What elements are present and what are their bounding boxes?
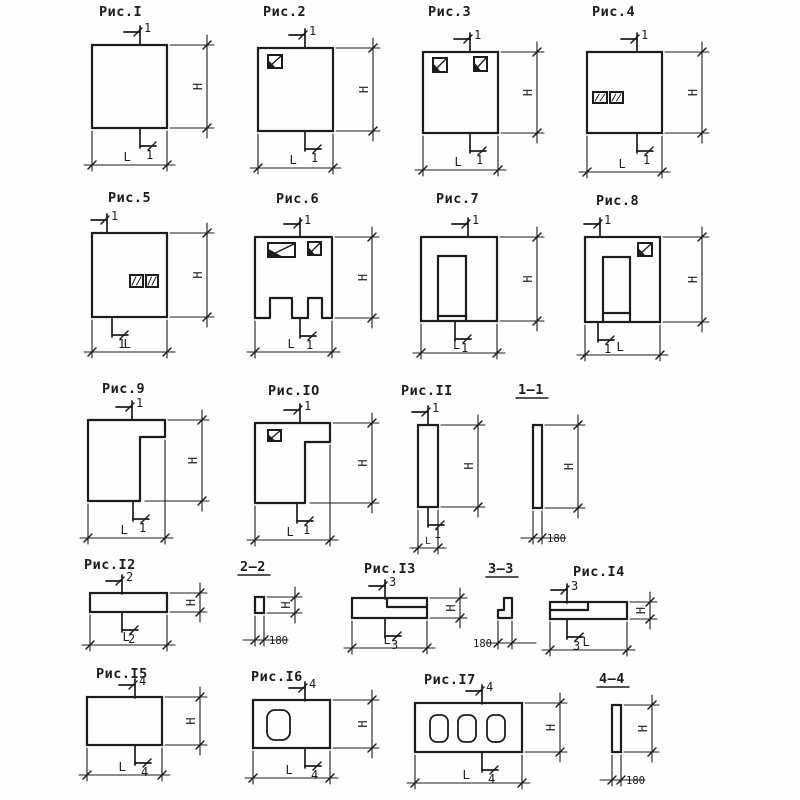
height-dim-label: H — [562, 463, 576, 470]
figure-fig7: Рис.711HL — [413, 191, 544, 359]
cut-number: 3 — [571, 579, 578, 593]
panel-outline — [258, 48, 333, 131]
height-dim-label: H — [521, 89, 535, 96]
length-dim-label: L — [119, 760, 126, 774]
length-dim-label: L — [463, 768, 470, 782]
height-dim-label: H — [521, 275, 535, 282]
thickness-dim-label: 180 — [547, 533, 566, 545]
figure-fig8: Рис.811HL — [577, 193, 709, 361]
length-dim-label: L — [121, 523, 128, 537]
hatch-line — [137, 277, 142, 285]
figure-title: Рис.9 — [102, 381, 145, 397]
height-dim-label: H — [191, 271, 205, 278]
section-sec4: 4—4H180 — [597, 671, 659, 787]
cut-number: 1 — [641, 28, 648, 42]
thickness-dim-label: 180 — [473, 638, 492, 650]
length-dim-label: L — [290, 153, 297, 167]
figure-fig1: Рис.I11HL — [84, 4, 214, 171]
cut-number: 3 — [573, 639, 580, 653]
hatch-line — [148, 277, 151, 285]
panel-outline — [88, 420, 165, 501]
figure-title: Рис.II — [401, 383, 453, 399]
length-dim-label: L — [453, 338, 460, 352]
panel-outline — [498, 598, 512, 618]
hatch-line — [595, 94, 599, 101]
length-dim-label: L — [124, 150, 131, 164]
section-profile — [255, 597, 264, 613]
figure-fig11: Рис.II11HL — [401, 383, 485, 554]
figure-title: Рис.I6 — [251, 669, 303, 685]
hatch-line — [612, 94, 616, 101]
section-title: 3—3 — [488, 561, 514, 577]
panel-outline — [418, 425, 438, 507]
cut-number: 1 — [432, 401, 439, 415]
cut-number: 1 — [111, 209, 118, 223]
panel-outline — [92, 45, 167, 128]
figure-fig12: Рис.I222HL — [82, 557, 207, 651]
height-dim-label: H — [356, 274, 370, 281]
figure-title: Рис.4 — [592, 4, 635, 20]
void-hole — [267, 710, 290, 740]
length-dim-label: L — [123, 630, 130, 644]
section-sec1: 1—1H180 — [516, 382, 585, 545]
cut-number: 1 — [474, 28, 481, 42]
height-dim-label: H — [191, 83, 205, 90]
hatch-line — [152, 277, 156, 285]
figure-fig17: Рис.I744HL — [407, 672, 567, 789]
cut-number: 4 — [139, 674, 146, 688]
panel-outline — [421, 237, 497, 321]
height-dim-label: H — [356, 720, 370, 727]
height-dim-label: H — [357, 86, 371, 93]
length-dim-label: L — [384, 633, 391, 647]
door-opening — [438, 256, 466, 316]
hatch-line — [132, 277, 136, 285]
cut-number: 1 — [304, 399, 311, 413]
figure-title: Рис.3 — [428, 4, 471, 20]
figure-fig2: Рис.211HL — [250, 4, 380, 174]
cut-number: 1 — [306, 338, 313, 352]
cut-number: 1 — [309, 24, 316, 38]
figure-fig10: Рис.IO11HL — [247, 383, 379, 546]
figure-title: Рис.7 — [436, 191, 479, 207]
cut-number: 1 — [311, 151, 318, 165]
height-dim-label: H — [634, 607, 648, 614]
cut-number: 1 — [139, 521, 146, 535]
height-dim-label: H — [686, 89, 700, 96]
hatch-line — [617, 94, 622, 101]
panel-outline — [415, 703, 522, 752]
length-dim-label: L — [425, 536, 431, 547]
thickness-dim-label: 180 — [626, 775, 645, 787]
figure-fig13: Рис.I333HL — [344, 561, 467, 654]
void-hole — [430, 715, 448, 742]
height-dim-label: H — [279, 601, 293, 608]
cut-number: 4 — [488, 772, 495, 786]
figure-title: Рис.I4 — [573, 564, 625, 580]
cut-number: 1 — [146, 148, 153, 162]
figure-title: Рис.I — [99, 4, 142, 20]
cut-number: 4 — [141, 765, 148, 779]
section-title: 2—2 — [240, 559, 266, 575]
cut-number: 1 — [144, 21, 151, 35]
void-hole — [487, 715, 505, 742]
figure-fig5: Рис.511HL — [84, 190, 214, 358]
length-dim-label: L — [455, 155, 462, 169]
length-dim-label: L — [124, 337, 131, 351]
cut-number: 1 — [136, 396, 143, 410]
panel-outline — [87, 697, 162, 745]
length-dim-label: L — [617, 340, 624, 354]
cut-number: 1 — [303, 523, 310, 537]
cut-number: 1 — [604, 213, 611, 227]
figure-fig14: Рис.I433HL — [542, 564, 657, 656]
panel-outline — [253, 700, 330, 748]
length-dim-label: L — [583, 635, 590, 649]
figure-fig15: Рис.I544HL — [79, 666, 207, 781]
drawing-canvas: Рис.I11HLРис.211HLРис.311HLРис.411HLРис.… — [0, 0, 800, 800]
figure-title: Рис.6 — [276, 191, 319, 207]
section-profile — [612, 705, 621, 752]
cut-number: 1 — [476, 153, 483, 167]
height-dim-label: H — [686, 276, 700, 283]
height-dim-label: H — [636, 725, 650, 732]
cut-number: 4 — [311, 768, 318, 782]
cut-number: 1 — [472, 213, 479, 227]
section-title: 1—1 — [518, 382, 544, 398]
cut-number: 4 — [309, 677, 316, 691]
cut-number: 3 — [391, 638, 398, 652]
height-dim-label: H — [186, 457, 200, 464]
figure-title: Рис.IO — [268, 383, 320, 399]
cut-number: 3 — [389, 575, 396, 589]
figure-fig4: Рис.411HL — [579, 4, 709, 178]
figure-title: Рис.I7 — [424, 672, 476, 688]
length-dim-label: L — [287, 525, 294, 539]
figure-fig16: Рис.I644HL — [245, 669, 379, 784]
height-dim-label: H — [544, 724, 558, 731]
section-sec2: 2—2H180 — [238, 559, 302, 647]
section-profile — [533, 425, 542, 508]
figure-title: Рис.8 — [596, 193, 639, 209]
figure-title: Рис.5 — [108, 190, 151, 206]
length-dim-label: L — [286, 763, 293, 777]
figure-fig3: Рис.311HL — [415, 4, 544, 176]
drawing-sheet: Рис.I11HLРис.211HLРис.311HLРис.411HLРис.… — [0, 0, 800, 800]
section-sec3: 3—3180 — [473, 561, 536, 650]
door-opening — [603, 257, 630, 313]
height-dim-label: H — [444, 604, 458, 611]
thickness-dim-label: 180 — [269, 635, 288, 647]
section-title: 4—4 — [599, 671, 625, 687]
figure-title: Рис.2 — [263, 4, 306, 20]
length-dim-label: L — [288, 337, 295, 351]
hatch-line — [600, 94, 605, 101]
cut-number: 4 — [486, 680, 493, 694]
figure-fig6: Рис.611HL — [247, 191, 379, 358]
panel-outline — [255, 423, 330, 503]
height-dim-label: H — [184, 599, 198, 606]
height-dim-label: H — [184, 717, 198, 724]
void-hole — [458, 715, 476, 742]
cut-number: 2 — [126, 570, 133, 584]
height-dim-label: H — [356, 459, 370, 466]
height-dim-label: H — [462, 462, 476, 469]
cut-number: 1 — [643, 153, 650, 167]
figure-fig9: Рис.911HL — [80, 381, 209, 544]
panel-outline — [90, 593, 167, 612]
panel-outline — [585, 237, 660, 322]
cut-number: 1 — [304, 213, 311, 227]
length-dim-label: L — [619, 157, 626, 171]
cut-number: 1 — [604, 342, 611, 356]
